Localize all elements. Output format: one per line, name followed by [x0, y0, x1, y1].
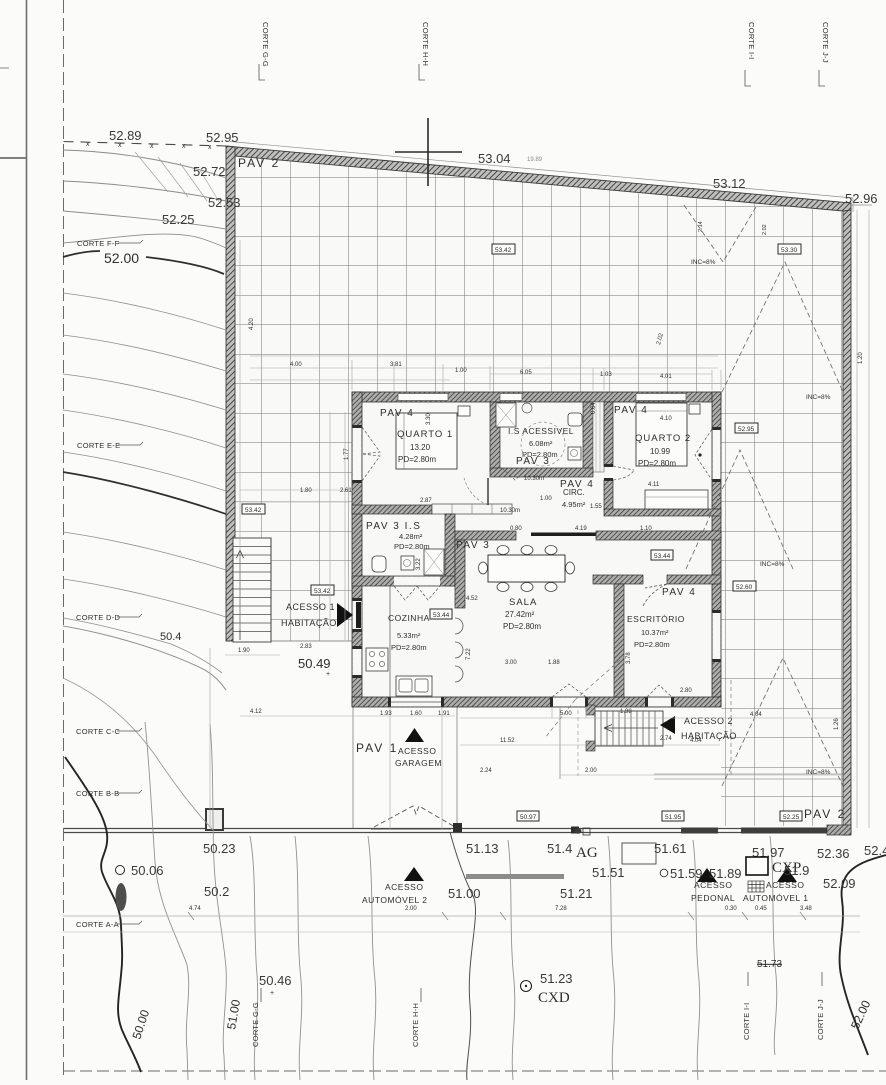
svg-text:11.52: 11.52 [500, 738, 515, 744]
svg-text:CORTE H-H: CORTE H-H [421, 22, 430, 66]
svg-text:CORTE G-G: CORTE G-G [251, 1002, 260, 1047]
svg-text:51.61: 51.61 [654, 841, 687, 856]
svg-text:INC=8%: INC=8% [760, 561, 785, 568]
svg-text:ACESSO 1: ACESSO 1 [286, 602, 335, 612]
svg-text:53.12: 53.12 [713, 176, 746, 191]
svg-text:GARAGEM: GARAGEM [395, 758, 442, 768]
svg-text:52.09: 52.09 [823, 876, 856, 891]
svg-text:PD=2.80m: PD=2.80m [503, 622, 541, 631]
svg-text:5.00: 5.00 [560, 711, 572, 717]
svg-text:1.88: 1.88 [548, 660, 560, 666]
svg-text:0.80: 0.80 [510, 526, 522, 532]
svg-text:53.44: 53.44 [433, 612, 450, 619]
svg-text:0.45: 0.45 [755, 906, 767, 912]
svg-text:4.74: 4.74 [189, 906, 201, 912]
svg-text:PD=2.80m: PD=2.80m [522, 450, 558, 459]
svg-text:50.4: 50.4 [160, 631, 181, 643]
svg-text:51.4: 51.4 [547, 841, 572, 856]
svg-text:13.20: 13.20 [410, 443, 431, 452]
svg-text:AG: AG [576, 845, 598, 861]
svg-text:x: x [150, 143, 154, 150]
svg-text:PEDONAL: PEDONAL [691, 893, 735, 903]
svg-text:INC=8%: INC=8% [691, 259, 716, 266]
svg-text:2.61: 2.61 [340, 488, 352, 494]
svg-text:CIRC.: CIRC. [563, 488, 585, 497]
svg-text:CORTE B-B: CORTE B-B [76, 789, 119, 798]
svg-text:+: + [270, 990, 274, 997]
svg-text:2.14: 2.14 [698, 221, 704, 232]
svg-text:27.42m²: 27.42m² [505, 610, 535, 619]
svg-text:52.95: 52.95 [738, 426, 755, 433]
svg-text:2.83: 2.83 [300, 644, 312, 650]
svg-text:2.24: 2.24 [480, 768, 492, 774]
svg-text:CXD: CXD [538, 990, 570, 1006]
svg-text:52.4: 52.4 [864, 843, 886, 858]
svg-text:AUTOMÓVEL 1: AUTOMÓVEL 1 [743, 893, 809, 903]
svg-text:CORTE I-I: CORTE I-I [747, 22, 756, 60]
svg-text:52.36: 52.36 [817, 846, 850, 861]
svg-text:ESCRITÓRIO: ESCRITÓRIO [627, 614, 685, 624]
svg-text:1.00: 1.00 [540, 496, 552, 502]
svg-text:CORTE J-J: CORTE J-J [816, 999, 825, 1040]
svg-text:2.74: 2.74 [660, 736, 672, 742]
svg-text:1.90: 1.90 [238, 648, 250, 654]
svg-text:53.42: 53.42 [314, 588, 331, 595]
svg-text:52.72: 52.72 [193, 164, 226, 179]
svg-text:CORTE A-A: CORTE A-A [76, 920, 119, 929]
svg-text:53.42: 53.42 [495, 247, 512, 254]
svg-text:1.10: 1.10 [640, 526, 652, 532]
svg-text:1.26: 1.26 [834, 718, 840, 730]
svg-text:52.89: 52.89 [109, 128, 142, 143]
svg-text:10.30m: 10.30m [524, 476, 544, 482]
svg-text:CORTE C-C: CORTE C-C [76, 727, 121, 736]
svg-text:1.80: 1.80 [300, 488, 312, 494]
svg-text:6.08m²: 6.08m² [529, 439, 553, 448]
svg-text:HABITAÇÃO: HABITAÇÃO [281, 618, 337, 628]
svg-text:PD=2.80m: PD=2.80m [398, 455, 436, 464]
svg-text:53.42: 53.42 [245, 507, 262, 514]
svg-text:51.13: 51.13 [466, 841, 499, 856]
svg-text:51.9: 51.9 [784, 863, 809, 878]
svg-text:CORTE J-J: CORTE J-J [821, 22, 830, 63]
svg-text:1.55: 1.55 [590, 504, 602, 510]
svg-text:1.98: 1.98 [620, 709, 632, 715]
svg-text:4.20: 4.20 [249, 318, 255, 330]
svg-text:51.73: 51.73 [757, 959, 782, 970]
svg-text:3.00: 3.00 [505, 660, 517, 666]
svg-text:52.95: 52.95 [206, 130, 239, 145]
svg-text:0.64: 0.64 [591, 402, 597, 414]
svg-text:1.77: 1.77 [344, 448, 350, 460]
svg-text:50.46: 50.46 [259, 973, 292, 988]
svg-text:AUTOMÓVEL 2: AUTOMÓVEL 2 [362, 895, 428, 905]
svg-text:4.12: 4.12 [250, 709, 262, 715]
svg-text:4.19: 4.19 [575, 526, 587, 532]
svg-text:4.52: 4.52 [466, 596, 478, 602]
svg-text:CORTE D-D: CORTE D-D [76, 613, 121, 622]
svg-text:50.2: 50.2 [204, 884, 229, 899]
svg-text:7.22: 7.22 [466, 648, 472, 660]
svg-text:50.06: 50.06 [131, 863, 164, 878]
svg-text:2.02: 2.02 [762, 224, 768, 235]
svg-text:PAV 4: PAV 4 [614, 405, 648, 416]
svg-text:10.37m²: 10.37m² [641, 628, 669, 637]
svg-text:I.S ACESSIVEL: I.S ACESSIVEL [508, 426, 574, 436]
svg-text:53.04: 53.04 [478, 151, 511, 166]
svg-text:50.49: 50.49 [298, 656, 331, 671]
svg-text:3.48: 3.48 [800, 906, 812, 912]
svg-text:7.28: 7.28 [555, 906, 567, 912]
svg-text:2.00: 2.00 [585, 768, 597, 774]
svg-text:SALA: SALA [509, 597, 537, 608]
svg-text:4.11: 4.11 [648, 482, 660, 488]
svg-text:PD=2.80m: PD=2.80m [391, 643, 427, 652]
svg-text:4.01: 4.01 [660, 374, 672, 380]
svg-text:CORTE E-E: CORTE E-E [77, 441, 120, 450]
svg-text:4.00: 4.00 [290, 362, 302, 368]
svg-text:PAV 4: PAV 4 [662, 587, 696, 598]
svg-text:3.81: 3.81 [390, 362, 402, 368]
svg-text:2.00: 2.00 [405, 906, 417, 912]
svg-text:PAV 2: PAV 2 [238, 156, 280, 170]
svg-text:PD=2.80m: PD=2.80m [394, 542, 430, 551]
svg-text:0.30: 0.30 [725, 906, 737, 912]
svg-text:52.25: 52.25 [783, 814, 800, 821]
svg-text:19.89: 19.89 [527, 157, 543, 163]
svg-text:x: x [208, 144, 212, 151]
svg-text:51.23: 51.23 [540, 971, 573, 986]
svg-text:52.60: 52.60 [736, 584, 753, 591]
svg-text:51.59: 51.59 [670, 866, 703, 881]
svg-text:3.22: 3.22 [416, 558, 422, 570]
svg-text:PAV 3: PAV 3 [456, 540, 490, 551]
svg-text:52.25: 52.25 [162, 212, 195, 227]
svg-text:COZINHA: COZINHA [388, 613, 430, 623]
svg-text:4.10: 4.10 [660, 416, 672, 422]
svg-text:1.20: 1.20 [858, 352, 864, 364]
svg-text:4.04: 4.04 [690, 738, 702, 744]
svg-text:2.87: 2.87 [420, 498, 432, 504]
svg-text:3.78: 3.78 [626, 652, 632, 664]
svg-text:CORTE I-I: CORTE I-I [742, 1002, 751, 1040]
svg-text:2.80: 2.80 [680, 688, 692, 694]
svg-text:52.53: 52.53 [208, 195, 241, 210]
svg-text:+: + [326, 671, 330, 678]
svg-text:QUARTO 1: QUARTO 1 [397, 429, 453, 440]
svg-text:4.04: 4.04 [750, 712, 762, 718]
svg-text:52.96: 52.96 [845, 191, 878, 206]
svg-text:50.23: 50.23 [203, 841, 236, 856]
svg-text:10.30m: 10.30m [500, 508, 520, 514]
svg-text:51.95: 51.95 [665, 814, 682, 821]
svg-text:PD=2.80m: PD=2.80m [634, 640, 670, 649]
svg-text:3.30: 3.30 [426, 413, 432, 425]
svg-text:5.33m²: 5.33m² [397, 631, 421, 640]
svg-text:PAV 3 I.S: PAV 3 I.S [366, 521, 421, 532]
svg-text:4.28m²: 4.28m² [399, 532, 423, 541]
svg-text:x: x [86, 141, 90, 148]
svg-text:1.00: 1.00 [455, 368, 467, 374]
svg-text:CORTE G-G: CORTE G-G [261, 22, 270, 67]
svg-text:x: x [118, 142, 122, 149]
svg-text:51.51: 51.51 [592, 865, 625, 880]
svg-text:51.21: 51.21 [560, 886, 593, 901]
svg-text:6.05: 6.05 [520, 370, 532, 376]
svg-text:CORTE F-F: CORTE F-F [77, 239, 120, 248]
svg-text:PAV 4: PAV 4 [380, 408, 414, 419]
svg-text:ACESSO 2: ACESSO 2 [684, 716, 733, 726]
svg-text:10.99: 10.99 [650, 447, 671, 456]
svg-text:50.97: 50.97 [520, 814, 537, 821]
svg-text:52.00: 52.00 [104, 250, 139, 266]
svg-text:QUARTO 2: QUARTO 2 [635, 433, 691, 444]
svg-text:PD=2.80m: PD=2.80m [638, 459, 676, 468]
svg-text:1.03: 1.03 [600, 372, 612, 378]
svg-text:PAV 1: PAV 1 [356, 741, 398, 755]
svg-text:53.30: 53.30 [781, 247, 798, 254]
svg-text:ACESSO: ACESSO [385, 882, 423, 892]
svg-text:INC=8%: INC=8% [806, 394, 831, 401]
svg-text:CORTE H-H: CORTE H-H [411, 1003, 420, 1047]
svg-text:ACESSO: ACESSO [398, 746, 436, 756]
svg-text:4.95m²: 4.95m² [562, 500, 586, 509]
svg-text:53.44: 53.44 [654, 553, 671, 560]
svg-text:PAV 2: PAV 2 [804, 807, 846, 821]
svg-text:51.00: 51.00 [448, 886, 481, 901]
svg-text:51.89: 51.89 [709, 866, 742, 881]
svg-text:x: x [182, 143, 186, 150]
